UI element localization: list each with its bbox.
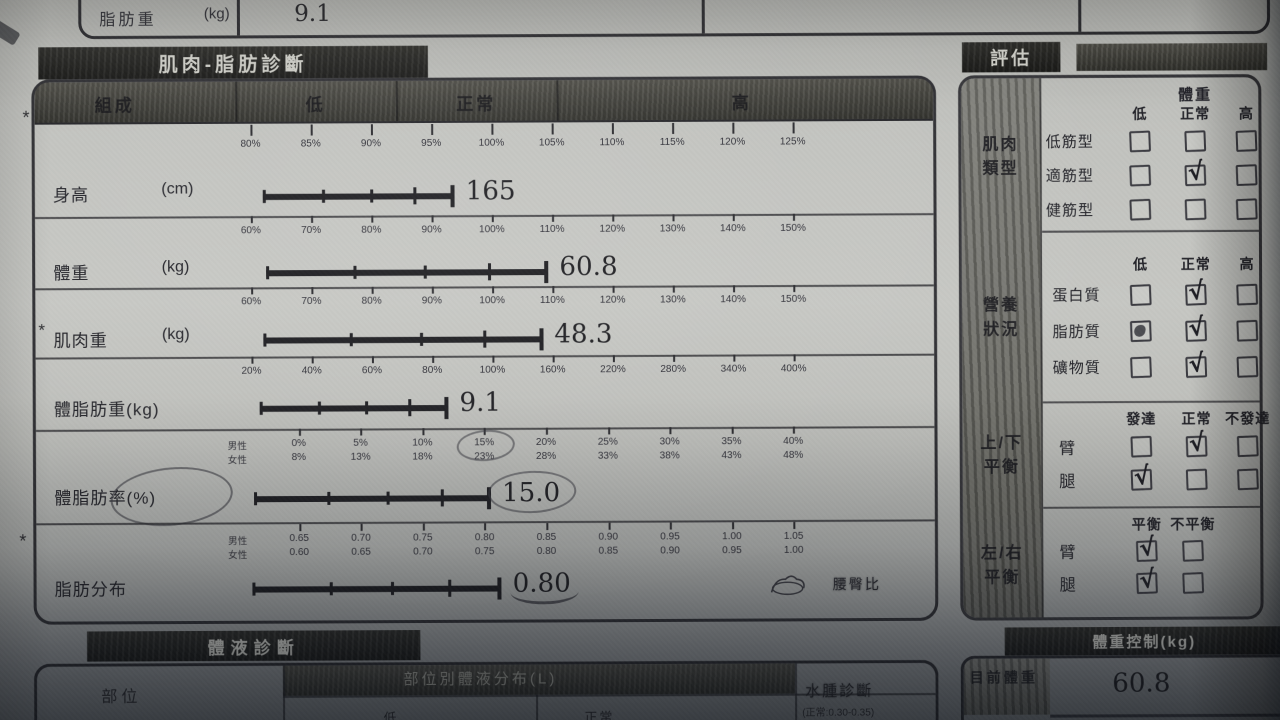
checkbox <box>1129 199 1151 221</box>
mf-scale-line: 20%40%60%80%100%160%220%280%340%400% <box>221 362 823 379</box>
edema-diagnosis-label: 水腫診斷 <box>805 679 873 700</box>
scale-tick-label: 20% <box>221 365 281 379</box>
mf-scale-block: 80%85%90%95%100%105%110%115%120%125% <box>220 135 822 152</box>
scale-tick-label: 0.95 <box>701 544 763 558</box>
checkmark: √ <box>1187 349 1207 379</box>
scale-tick-label: 28% <box>515 450 577 464</box>
mf-row: 脂肪分布男性0.650.700.750.800.850.900.951.001.… <box>36 519 935 620</box>
scale-tick-label: 85% <box>281 137 341 151</box>
bar-tick <box>420 333 423 346</box>
edema-normal-range: (正常:0.30-0.35) <box>802 703 874 718</box>
eval-row: 礦物質√ <box>1043 348 1260 385</box>
checkmark: √ <box>1186 157 1206 187</box>
table-divider <box>795 664 797 720</box>
checkbox <box>1184 130 1206 152</box>
bar-tick <box>444 397 448 419</box>
bar-tick <box>440 489 443 506</box>
scale-tick-label: 80% <box>341 223 401 237</box>
previous-table-partial-row: 脂肪重 (kg) 9.1 <box>78 0 1270 39</box>
scale-tick-label: 0.60 <box>268 546 330 560</box>
scale-tick-label: 0.75 <box>454 545 516 559</box>
eval-row: 脂肪質√ <box>1042 312 1259 349</box>
scale-sex-prefix: 男性 <box>228 438 247 452</box>
checkbox <box>1130 435 1152 457</box>
scale-tick-label: 150% <box>763 222 823 236</box>
fat-mass-value: 9.1 <box>294 1 331 27</box>
mf-scale-line: 80%85%90%95%100%105%110%115%120%125% <box>220 135 822 152</box>
scale-tick-label: 40% <box>762 434 824 448</box>
scale-tick-label: 80% <box>342 295 402 309</box>
result-value: 60.8 <box>559 252 617 282</box>
side-label-line: 類型 <box>961 157 1039 181</box>
scale-tick-label: 90% <box>341 137 401 151</box>
mf-scale-line: 女性0.600.650.700.750.800.850.900.951.00 <box>268 544 824 560</box>
scale-tick-label: 70% <box>281 224 341 238</box>
checkmark: √ <box>1186 276 1206 306</box>
result-bar <box>259 405 447 412</box>
bar-tick <box>544 261 548 283</box>
mf-scale-block: 60%70%80%90%100%110%120%130%140%150% <box>221 293 823 310</box>
scale-tick-label: 95% <box>401 137 461 151</box>
side-label-line: 狀況 <box>962 318 1040 342</box>
eval-column-header: 高 <box>1239 254 1254 274</box>
scale-tick-label: 105% <box>522 136 582 150</box>
result-value: 9.1 <box>459 388 501 418</box>
eval-section: 體重低正常高低筋型適筋型√健筋型 <box>1041 77 1259 231</box>
checkmark: √ <box>1137 532 1157 562</box>
eval-rows: 臂√腿√ <box>1043 534 1260 599</box>
mf-row: 體脂肪率(%)男性0%5%10%15%20%25%30%35%40%女性8%13… <box>36 426 935 525</box>
eval-row: 臂√ <box>1043 534 1260 567</box>
eval-rows: 臂√腿√ <box>1043 429 1260 496</box>
scale-tick-label: 5% <box>330 436 392 450</box>
scale-tick-label: 18% <box>392 450 454 464</box>
scale-tick-label: 340% <box>703 362 763 376</box>
checkbox <box>1130 284 1152 306</box>
scale-tick-label: 1.00 <box>701 530 763 544</box>
mf-barline: 165 <box>221 192 823 195</box>
scale-tick-label: 0.90 <box>639 544 701 558</box>
header-low: 低 <box>235 90 396 116</box>
checkbox: √ <box>1136 572 1158 594</box>
bar-tick <box>539 328 543 350</box>
mf-row-label: 體重(kg) <box>53 258 254 284</box>
scale-tick-label: 0.65 <box>330 546 392 560</box>
current-weight-value: 60.8 <box>1112 668 1170 698</box>
checkbox <box>1182 572 1204 594</box>
eval-column-header: 正常 <box>1181 254 1211 274</box>
scale-tick-label: 40% <box>282 364 342 378</box>
mf-barline: 15.0 <box>222 494 824 497</box>
weight-control-section-title: 體重控制(kg) <box>1092 630 1196 652</box>
bar-tick <box>498 577 502 599</box>
side-label-line: 平衡 <box>963 566 1041 590</box>
checkbox: √ <box>1136 540 1158 562</box>
whr-label: 腰臀比 <box>833 574 881 594</box>
scale-tick-label: 60% <box>342 364 402 378</box>
scale-tick-label: 100% <box>461 137 521 151</box>
side-label-line: 肌肉 <box>961 133 1039 157</box>
weight-control-section-tab: 體重控制(kg) <box>1005 626 1280 655</box>
header-high: 高 <box>556 88 927 115</box>
body-fluid-table: 部位 部位別體液分布(L) 低 正常 水腫診斷 (正常:0.30-0.35) <box>34 660 939 720</box>
scale-tick-label: 100% <box>462 223 522 237</box>
checkbox: √ <box>1184 164 1206 186</box>
mf-barline: 9.1 <box>222 403 824 406</box>
fat-mass-unit: (kg) <box>204 5 230 22</box>
scale-tick-label: 8% <box>268 451 330 465</box>
result-bar <box>266 269 547 276</box>
scale-tick-label: 120% <box>582 294 642 308</box>
eval-row-label: 蛋白質 <box>1052 284 1100 305</box>
checkbox: √ <box>1185 320 1207 342</box>
bar-tick <box>451 185 455 207</box>
eval-row-label: 臂 <box>1059 434 1076 458</box>
checkbox: √ <box>1131 468 1153 490</box>
eval-row-label: 臂 <box>1059 539 1076 563</box>
checkbox <box>1237 356 1259 378</box>
body-fluid-section-title: 體液診斷 <box>207 633 299 659</box>
mf-scale-block: 男性0%5%10%15%20%25%30%35%40%女性8%13%18%23%… <box>222 434 825 465</box>
header-composition: 組成 <box>34 91 195 117</box>
scale-tick-label: 110% <box>522 223 582 237</box>
eval-column-header: 高 <box>1239 103 1254 123</box>
scale-tick-label: 60% <box>221 295 281 309</box>
scale-tick-label: 23% <box>453 450 515 464</box>
scale-tick-label: 140% <box>703 293 763 307</box>
eval-section: 低正常高蛋白質√脂肪質√礦物質√ <box>1042 230 1260 404</box>
scale-tick-label: 0.80 <box>516 545 578 559</box>
bar-tick <box>266 266 269 279</box>
eval-column-header: 低 <box>1132 104 1147 124</box>
bar-tick <box>365 401 368 414</box>
scale-tick-label: 0% <box>268 437 330 451</box>
mf-scale-line: 60%70%80%90%100%110%120%130%140%150% <box>221 293 823 310</box>
mf-row-unit: (kg) <box>162 259 190 277</box>
scale-sex-prefix: 男性 <box>228 533 247 547</box>
checkbox <box>1236 198 1258 220</box>
eval-row-label: 健筋型 <box>1046 199 1094 220</box>
mf-barline: 60.8 <box>221 268 823 271</box>
scale-tick-label: 400% <box>764 362 824 376</box>
eval-row-label: 低筋型 <box>1046 131 1094 152</box>
scale-tick-label: 160% <box>523 363 583 377</box>
scale-tick-label: 43% <box>701 449 763 463</box>
eval-row: 健筋型 <box>1042 192 1259 227</box>
whr-note: 腰臀比 <box>764 569 985 598</box>
checkmark: √ <box>1137 565 1157 595</box>
scale-tick-label: 48% <box>762 449 824 463</box>
scale-tick-label: 80% <box>402 364 462 378</box>
scale-tick-label: 0.65 <box>268 532 330 546</box>
bar-tick <box>424 266 427 279</box>
table-divider <box>1050 714 1280 718</box>
scale-tick-label: 20% <box>515 436 577 450</box>
table-divider <box>237 0 240 35</box>
bar-tick <box>391 582 394 595</box>
scale-tick-label: 0.85 <box>577 545 639 559</box>
bar-tick <box>329 582 332 595</box>
weight-control-table: 目前體重 60.8 <box>961 654 1280 720</box>
side-label-line: 營養 <box>962 294 1040 318</box>
eval-row-label: 腿 <box>1060 571 1077 595</box>
current-weight-label: 目前體重 <box>964 658 1051 697</box>
result-bar <box>252 586 500 593</box>
scale-tick-label: 1.00 <box>763 544 825 558</box>
mf-row: 體脂肪重(kg)20%40%60%80%100%160%220%280%340%… <box>36 354 935 432</box>
scanned-report-photo: 脂肪重 (kg) 9.1 * * 肌肉-脂肪診斷 組成 低 正常 高 身高(cm… <box>0 0 1280 720</box>
body-part-column-label: 部位 <box>101 682 141 706</box>
scale-tick-label: 125% <box>763 135 823 149</box>
checkbox <box>1236 164 1258 186</box>
eval-row: 腿√ <box>1044 566 1261 599</box>
checkbox: √ <box>1185 356 1207 378</box>
eval-rows: 蛋白質√脂肪質√礦物質√ <box>1042 276 1259 385</box>
scale-tick-label: 130% <box>642 222 702 236</box>
eval-row-label: 適筋型 <box>1046 165 1094 186</box>
checkmark: √ <box>1186 312 1206 342</box>
table-divider <box>1078 0 1081 32</box>
fluid-distribution-label: 部位別體液分布(L) <box>283 664 795 696</box>
result-value: 48.3 <box>554 319 612 349</box>
mf-row-label: 肌肉重(kg) <box>54 326 255 352</box>
mf-row-label-text: 肌肉重 <box>54 331 108 350</box>
scale-tick-label: 100% <box>462 294 522 308</box>
checkmark: √ <box>1187 427 1207 457</box>
header-divider <box>556 80 558 120</box>
eval-column-header: 發達 <box>1126 409 1156 429</box>
evaluation-table: 肌肉類型營養狀況上/下平衡左/右平衡 體重低正常高低筋型適筋型√健筋型低正常高蛋… <box>958 74 1264 620</box>
result-bar <box>254 495 490 502</box>
eval-column-header: 不平衡 <box>1170 514 1215 534</box>
scale-tick-label: 120% <box>702 136 762 150</box>
bar-tick <box>370 189 373 202</box>
checkbox: √ <box>1185 284 1207 306</box>
mf-row-label: 身高(cm) <box>53 180 254 206</box>
body-figure-icon <box>764 570 810 598</box>
scale-tick-label: 220% <box>583 363 643 377</box>
scale-tick-label: 120% <box>582 222 642 236</box>
eval-rows: 低筋型適筋型√健筋型 <box>1042 123 1259 226</box>
result-value: 15.0 <box>502 478 560 508</box>
mf-scale-block: 20%40%60%80%100%160%220%280%340%400% <box>221 362 823 379</box>
side-label-line: 平衡 <box>963 456 1041 480</box>
body-fluid-section-tab: 體液診斷 <box>87 630 420 662</box>
checkbox <box>1185 199 1207 221</box>
bar-tick <box>448 580 451 597</box>
table-divider <box>283 666 285 720</box>
bar-tick <box>263 190 266 203</box>
eval-row: 臂√ <box>1043 429 1260 463</box>
eval-row: 低筋型 <box>1042 123 1259 158</box>
scale-tick-label: 0.75 <box>392 531 454 545</box>
mf-row-label-text: 身高 <box>53 186 89 205</box>
checkbox <box>1236 284 1258 306</box>
checkbox: √ <box>1186 435 1208 457</box>
eval-superheader: 體重 <box>1178 83 1212 104</box>
evaluation-section-tab: 評估 <box>962 42 1061 73</box>
scale-tick-label: 115% <box>642 136 702 150</box>
checkbox <box>1130 320 1152 342</box>
mf-row-label-text: 體重 <box>53 264 89 283</box>
scale-tick-label: 80% <box>220 138 280 152</box>
eval-section-side-label: 上/下平衡 <box>963 432 1042 481</box>
eval-row: 蛋白質√ <box>1042 276 1259 313</box>
bar-tick <box>350 333 353 346</box>
eval-section: 發達正常不發達臂√腿√ <box>1043 400 1260 508</box>
scale-tick-label: 0.90 <box>577 531 639 545</box>
scale-tick-label: 100% <box>462 364 522 378</box>
eval-section-side-label: 營養狀況 <box>962 294 1041 343</box>
bar-tick <box>318 402 321 415</box>
eval-section: 平衡不平衡臂√腿√ <box>1043 506 1260 616</box>
eval-row: 腿√ <box>1043 462 1260 496</box>
bar-tick <box>327 492 330 505</box>
eval-row-label: 礦物質 <box>1053 356 1101 377</box>
scale-tick-label: 90% <box>401 223 461 237</box>
checkmark: √ <box>1132 461 1152 491</box>
scale-tick-label: 60% <box>221 224 281 238</box>
bar-tick <box>353 266 356 279</box>
mf-row-unit: (cm) <box>161 180 193 198</box>
mf-row: 身高(cm)80%85%90%95%100%105%110%115%120%12… <box>35 119 934 217</box>
mf-barline: 0.80腰臀比 <box>222 584 824 587</box>
mf-row-unit: (kg) <box>162 326 190 344</box>
mf-scale-block: 男性0.650.700.750.800.850.900.951.001.05女性… <box>222 530 825 561</box>
scale-tick-label: 38% <box>639 449 701 463</box>
checkbox <box>1129 131 1151 153</box>
result-bar <box>263 193 454 200</box>
asterisk-mark: * <box>19 531 26 552</box>
scale-tick-label: 150% <box>763 293 823 307</box>
header-divider <box>396 81 398 121</box>
mf-scale-line: 60%70%80%90%100%110%120%130%140%150% <box>221 222 823 239</box>
mf-row-label: 脂肪分布 <box>55 575 256 601</box>
header-divider <box>235 82 237 122</box>
muscle-fat-table: 組成 低 正常 高 身高(cm)80%85%90%95%100%105%110%… <box>31 76 938 625</box>
scale-tick-label: 110% <box>522 294 582 308</box>
mf-row-label-text: 脂肪分布 <box>55 580 127 599</box>
side-label-line: 左/右 <box>963 542 1041 566</box>
scale-sex-prefix: 女性 <box>228 452 247 466</box>
scale-tick-label: 25% <box>577 435 639 449</box>
muscle-fat-section-title: 肌肉-脂肪診斷 <box>159 49 308 77</box>
checkbox <box>1236 130 1258 152</box>
scale-tick-label: 15% <box>453 436 515 450</box>
bar-tick <box>322 190 325 203</box>
mf-row: 體重(kg)60%70%80%90%100%110%120%130%140%15… <box>35 213 934 290</box>
asterisk-mark: * <box>38 320 45 340</box>
bar-tick <box>414 187 417 204</box>
scale-tick-label: 130% <box>643 293 703 307</box>
mf-barline: 48.3 <box>221 335 823 338</box>
checkbox <box>1182 540 1204 562</box>
table-divider <box>536 695 538 720</box>
bar-tick <box>263 334 266 347</box>
bar-tick <box>408 399 411 416</box>
eval-column-header: 正常 <box>1180 103 1210 123</box>
bar-tick <box>386 492 389 505</box>
scale-tick-label: 0.70 <box>392 546 454 560</box>
mf-row-label: 體脂肪率(%) <box>54 483 255 509</box>
pen-circle-mark <box>108 462 235 531</box>
scale-tick-label: 0.95 <box>639 530 701 544</box>
checkbox <box>1236 320 1258 342</box>
eval-section-side-label: 肌肉類型 <box>961 133 1040 182</box>
scale-tick-label: 140% <box>703 222 763 236</box>
bar-tick <box>488 263 491 280</box>
eval-column-header: 正常 <box>1181 409 1211 429</box>
eval-column-header: 平衡 <box>1132 514 1162 534</box>
fluid-subcol-normal: 正常 <box>584 706 614 720</box>
scale-tick-label: 13% <box>330 450 392 464</box>
report-paper: 脂肪重 (kg) 9.1 * * 肌肉-脂肪診斷 組成 低 正常 高 身高(cm… <box>0 0 1280 720</box>
scale-tick-label: 10% <box>391 436 453 450</box>
muscle-fat-section-tab: 肌肉-脂肪診斷 <box>38 46 428 80</box>
asterisk-mark: * <box>22 108 29 129</box>
result-value: 165 <box>466 176 516 206</box>
pen-smudge <box>1133 324 1146 338</box>
header-normal: 正常 <box>396 89 557 115</box>
eval-column-header: 低 <box>1133 254 1148 274</box>
scale-tick-label: 30% <box>639 435 701 449</box>
result-value: 0.80 <box>513 568 571 598</box>
scale-tick-label: 0.85 <box>515 531 577 545</box>
checkbox <box>1186 468 1208 490</box>
scale-tick-label: 35% <box>701 435 763 449</box>
checkbox <box>1129 165 1151 187</box>
mf-scale-block: 60%70%80%90%100%110%120%130%140%150% <box>221 222 823 239</box>
side-label-line: 上/下 <box>963 432 1041 456</box>
muscle-fat-header-row: 組成 低 正常 高 <box>34 79 933 125</box>
checkbox <box>1237 468 1259 490</box>
scale-tick-label: 33% <box>577 449 639 463</box>
fluid-subcol-low: 低 <box>383 707 398 720</box>
evaluation-header-band <box>1076 43 1267 71</box>
checkbox <box>1237 435 1259 457</box>
eval-section-side-label: 左/右平衡 <box>963 542 1042 591</box>
scale-tick-label: 0.80 <box>454 531 516 545</box>
mf-scale-line: 女性8%13%18%23%28%33%38%43%48% <box>268 449 824 465</box>
table-divider <box>702 0 705 33</box>
fat-mass-label: 脂肪重 <box>99 6 156 30</box>
bar-tick <box>252 583 255 596</box>
evaluation-section-title: 評估 <box>990 44 1032 70</box>
mf-row-label: 體脂肪重(kg) <box>54 395 255 421</box>
scale-tick-label: 110% <box>582 136 642 150</box>
bar-tick <box>254 492 257 505</box>
scale-sex-prefix: 女性 <box>228 547 247 561</box>
scale-tick-label: 90% <box>402 295 462 309</box>
bar-tick <box>259 402 262 415</box>
bar-tick <box>484 331 487 348</box>
fluid-distribution-header: 部位別體液分布(L) <box>283 664 795 696</box>
checkbox <box>1130 356 1152 378</box>
scale-tick-label: 0.70 <box>330 532 392 546</box>
mf-row-label-text: 體脂肪重(kg) <box>54 400 160 420</box>
page-edge-shadow <box>1262 0 1280 719</box>
eval-row-label: 脂肪質 <box>1052 320 1100 341</box>
corner-shadow-mark <box>0 19 21 46</box>
scale-tick-label: 70% <box>281 295 341 309</box>
current-weight-label-cell: 目前體重 <box>964 658 1051 715</box>
mf-row: *肌肉重(kg)60%70%80%90%100%110%120%130%140%… <box>35 284 934 359</box>
eval-row-label: 腿 <box>1059 467 1076 491</box>
scale-tick-label: 1.05 <box>763 530 825 544</box>
result-bar <box>263 336 542 343</box>
eval-row: 適筋型√ <box>1042 158 1259 193</box>
scale-tick-label: 280% <box>643 363 703 377</box>
